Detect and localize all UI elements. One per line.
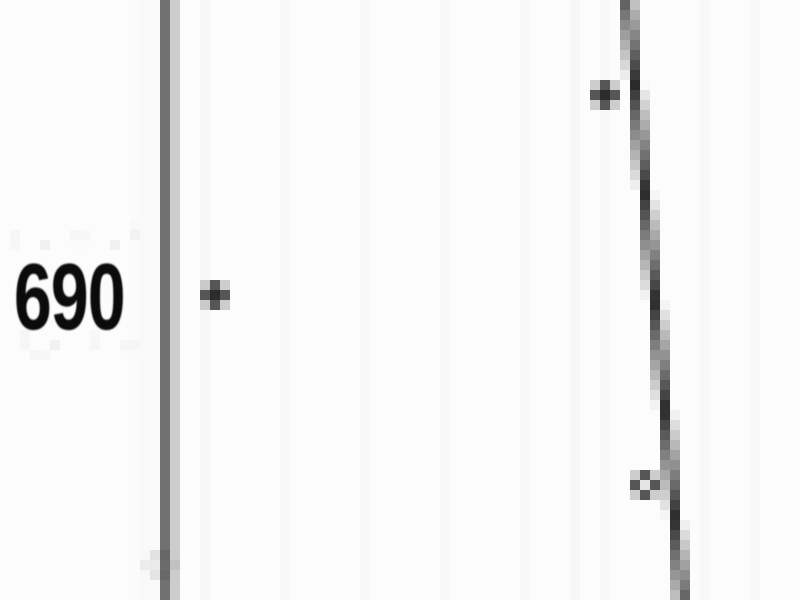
y-axis-tick-label: 690: [14, 261, 125, 333]
chart-crop: 690: [0, 0, 800, 600]
